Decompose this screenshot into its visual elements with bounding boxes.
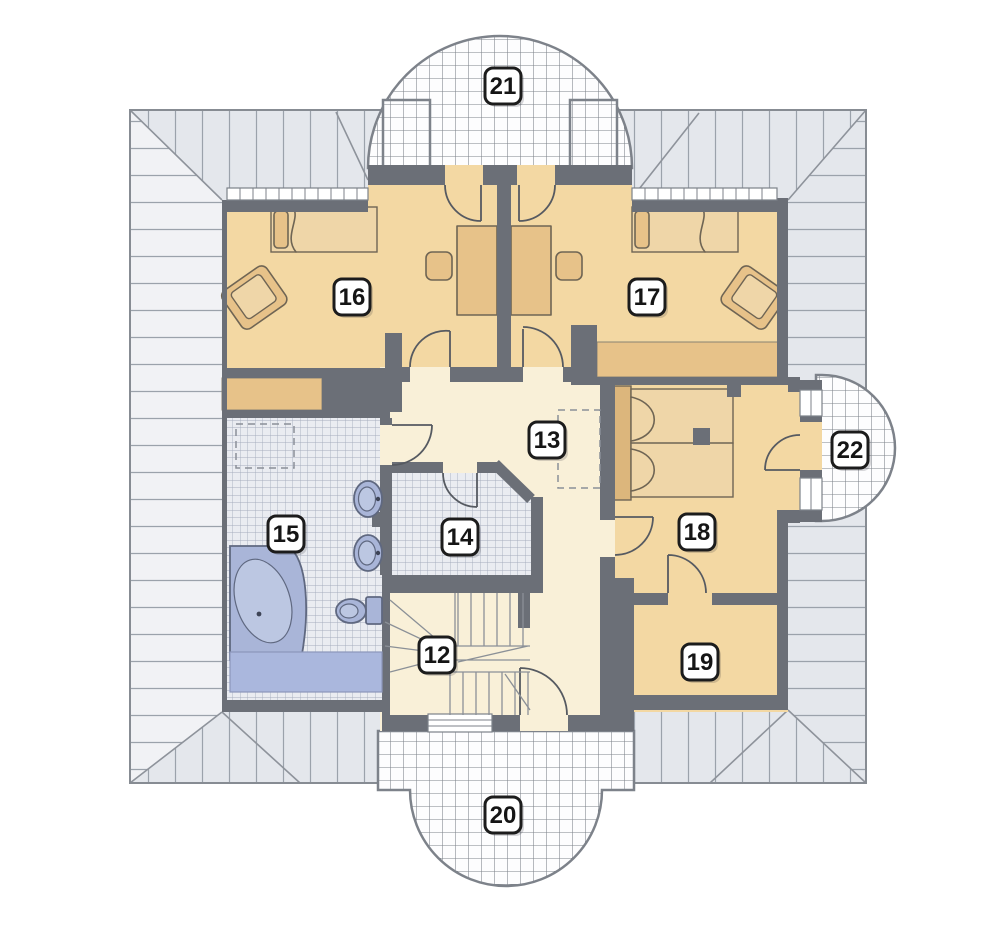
room-label-16: 16 xyxy=(334,279,373,318)
svg-text:13: 13 xyxy=(534,427,561,454)
roof-plane-left xyxy=(130,110,222,783)
room-label-12: 12 xyxy=(419,637,458,676)
bed-room18 xyxy=(614,386,733,500)
room-label-17: 17 xyxy=(629,279,668,318)
room-label-14: 14 xyxy=(442,519,481,558)
room-label-13: 13 xyxy=(529,422,568,461)
svg-text:19: 19 xyxy=(687,649,714,676)
svg-text:22: 22 xyxy=(837,437,864,464)
room-label-19: 19 xyxy=(682,644,721,683)
toilet xyxy=(336,597,382,624)
room-label-22: 22 xyxy=(832,432,871,471)
bed-room16 xyxy=(271,207,377,252)
sink-lower xyxy=(354,535,382,571)
svg-text:17: 17 xyxy=(634,284,661,311)
room-label-18: 18 xyxy=(679,514,718,553)
floor-plan-page: 12 13 14 15 16 17 18 xyxy=(0,0,1000,948)
svg-text:20: 20 xyxy=(490,802,517,829)
svg-text:12: 12 xyxy=(424,642,451,669)
window-strip-room16 xyxy=(227,188,368,200)
room-label-15: 15 xyxy=(268,516,307,555)
window-room18-upper xyxy=(800,390,822,416)
room-label-21: 21 xyxy=(485,68,524,107)
window-room18-lower xyxy=(800,478,822,510)
window-stairs xyxy=(428,714,492,732)
window-strip-room17 xyxy=(632,188,777,200)
sink-upper xyxy=(354,481,382,517)
bath-mat xyxy=(230,652,382,692)
room-label-20: 20 xyxy=(485,797,524,836)
floor-plan-drawing: 12 13 14 15 16 17 18 xyxy=(0,0,1000,948)
bed-room17 xyxy=(632,207,738,252)
svg-text:16: 16 xyxy=(339,284,366,311)
chimney-room18 xyxy=(693,428,710,445)
bathtub-drain xyxy=(257,612,262,617)
svg-text:14: 14 xyxy=(447,524,474,551)
svg-text:18: 18 xyxy=(684,519,711,546)
svg-text:15: 15 xyxy=(273,521,300,548)
svg-text:21: 21 xyxy=(490,73,517,100)
